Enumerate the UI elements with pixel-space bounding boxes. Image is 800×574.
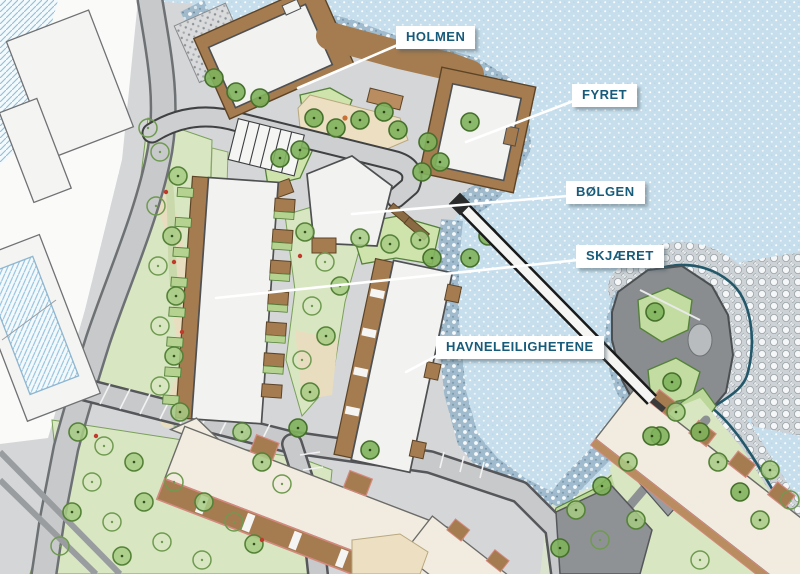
label-bolgen: BØLGEN <box>566 181 645 204</box>
label-skjaeret: SKJÆRET <box>576 245 664 268</box>
label-fyret: FYRET <box>572 84 637 107</box>
label-holmen: HOLMEN <box>396 26 475 49</box>
label-havneleilighetene: HAVNELEILIGHETENE <box>436 336 604 359</box>
site-plan-canvas <box>0 0 800 574</box>
site-plan-map: HOLMEN FYRET BØLGEN SKJÆRET HAVNELEILIGH… <box>0 0 800 574</box>
